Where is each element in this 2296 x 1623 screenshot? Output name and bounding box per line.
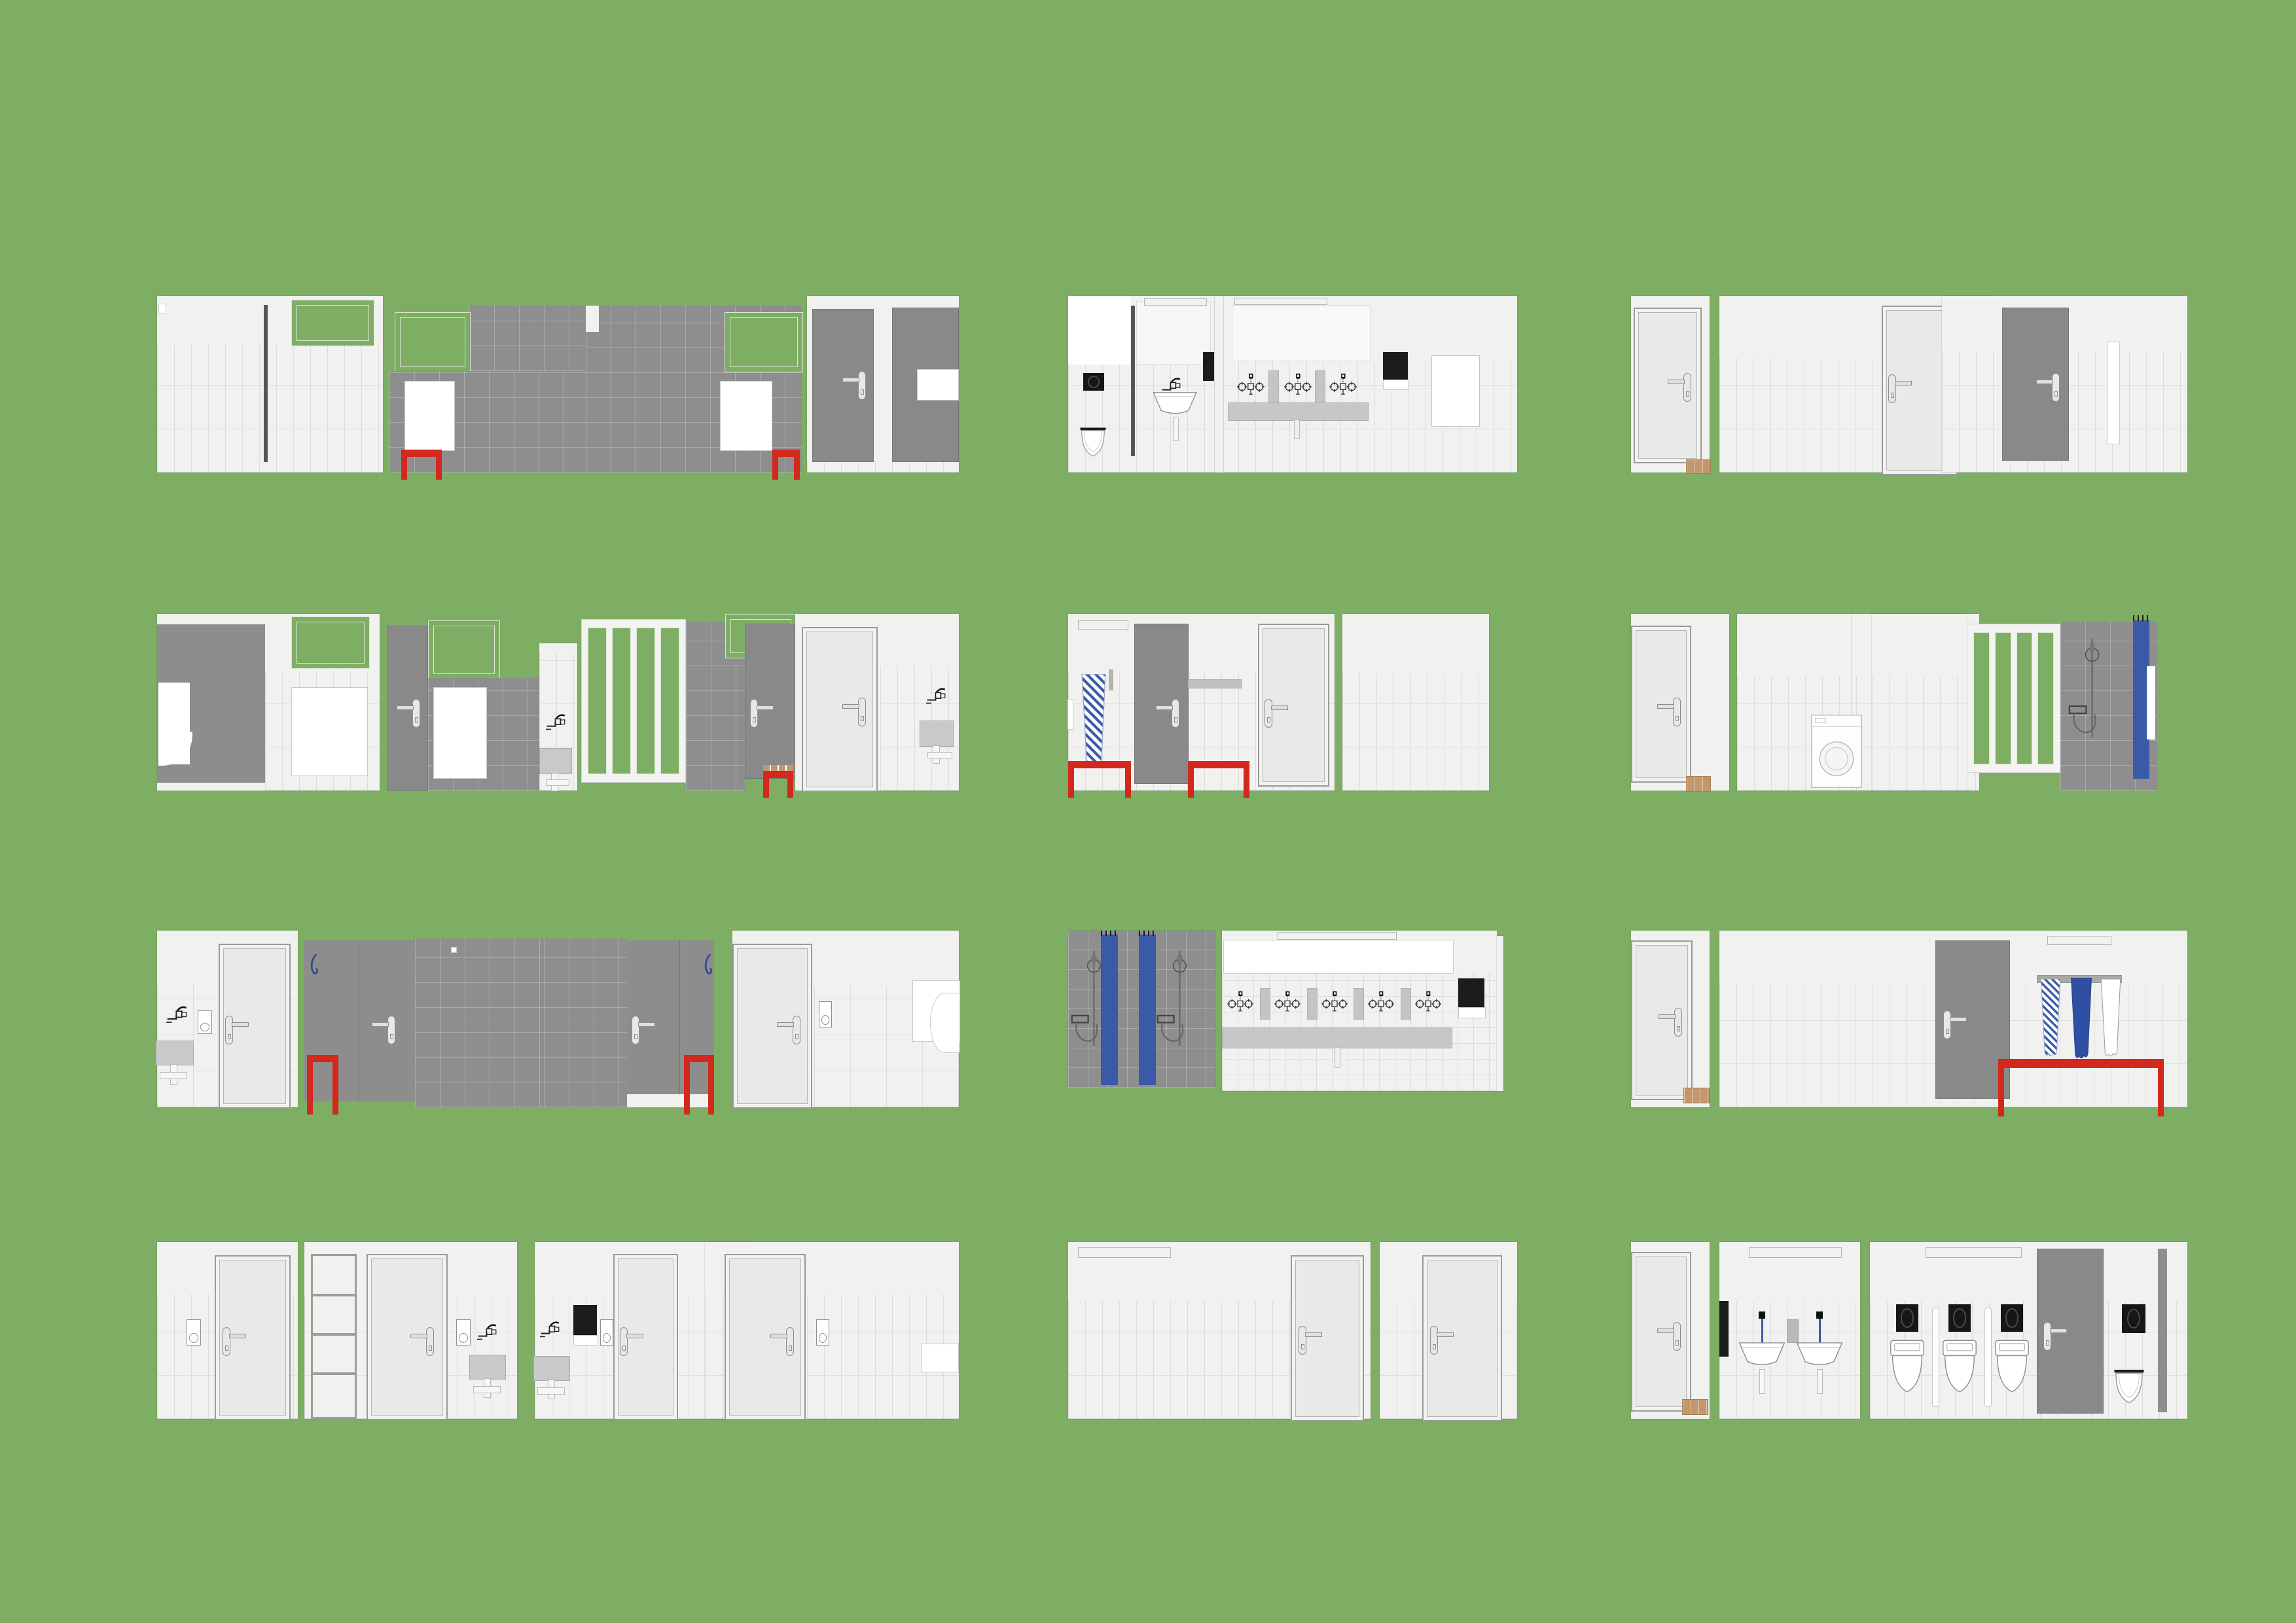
gray-edge-panel — [2158, 1249, 2167, 1412]
tan-skirting — [1686, 459, 1711, 474]
washroom-wall — [1068, 296, 1517, 473]
coat-shelf — [1188, 679, 1242, 688]
rack-door-wall — [304, 1242, 517, 1419]
wall-edge — [1497, 936, 1503, 1091]
faucet-icon — [1415, 991, 1441, 1014]
luminaire — [1234, 298, 1327, 305]
luminaire — [1278, 932, 1397, 940]
door-wall — [1631, 614, 1729, 791]
door-handle — [426, 1327, 434, 1356]
cabinet-shelf — [1383, 380, 1409, 390]
tall-niche — [2107, 342, 2120, 444]
blue-shower-column — [1139, 935, 1156, 1085]
door-niche-wall — [705, 1242, 959, 1419]
mixer-icon — [476, 1322, 499, 1343]
window-opening — [395, 312, 471, 372]
wall-niche — [404, 381, 455, 451]
faucet-icon — [1321, 991, 1348, 1014]
trough-leg — [1335, 1047, 1340, 1068]
wall-niche — [720, 381, 772, 451]
black-cabinet — [1383, 352, 1408, 380]
glass-partition — [581, 619, 686, 783]
mixer-icon — [925, 686, 948, 707]
door-handle — [750, 699, 758, 728]
red-bench — [1188, 761, 1249, 798]
mixer-icon — [539, 1319, 562, 1340]
gray-tiled-wall — [389, 296, 586, 473]
door-wall — [807, 296, 959, 473]
wall-notch — [586, 306, 599, 332]
door-handle — [412, 699, 420, 728]
toilet-icon — [1077, 427, 1109, 458]
urinal-sensor-plate — [1896, 1304, 1918, 1332]
mirror-recess — [1232, 305, 1371, 361]
hook-ticks — [1139, 931, 1156, 936]
wall-niche — [433, 687, 487, 779]
white-door — [1631, 940, 1693, 1100]
glass-pane — [612, 628, 631, 774]
changing-wall — [1068, 614, 1335, 791]
panel-joint — [359, 940, 359, 1101]
door-handle — [620, 1327, 628, 1356]
basin-door-wall — [157, 931, 298, 1107]
tan-seat — [763, 765, 793, 771]
sink-bracket — [160, 1072, 187, 1079]
sink-bracket — [546, 779, 569, 786]
elevation-group-1 — [157, 296, 959, 473]
wash-trough — [1222, 1027, 1452, 1048]
partition-edge — [1131, 306, 1135, 456]
mixer-icon — [545, 712, 568, 733]
gray-sink — [469, 1355, 506, 1380]
blue-towel-icon — [2068, 978, 2094, 1067]
gray-sink — [533, 1356, 570, 1381]
tan-skirting — [1682, 1399, 1708, 1415]
shower-niche — [2147, 666, 2155, 740]
door-handle — [2052, 373, 2060, 402]
black-mirror-panel — [1203, 352, 1214, 381]
window-opening — [291, 616, 370, 669]
red-stool — [307, 1055, 338, 1115]
tile-grid — [1872, 676, 1967, 791]
tile-grid — [1342, 673, 1489, 791]
luminaire — [2047, 936, 2111, 945]
toilet-silhouette — [930, 993, 960, 1053]
door-handle — [858, 371, 866, 400]
gray-tiles — [469, 306, 586, 371]
blue-hook-icon — [703, 954, 713, 977]
glass-pane — [1995, 632, 2011, 764]
door-wall — [1631, 931, 1710, 1107]
sensor-faucet — [1761, 1313, 1763, 1346]
gray-sink — [539, 748, 572, 774]
door-handle — [1673, 698, 1681, 726]
basin-icon — [1738, 1342, 1786, 1369]
white-tiled-part — [1872, 614, 1967, 791]
basin-wall — [539, 643, 577, 791]
door-handle — [223, 1327, 230, 1356]
tan-skirting — [1683, 1088, 1710, 1103]
urinal-icon — [1939, 1339, 1980, 1394]
wall-niche — [291, 687, 368, 776]
sensor-faucet — [1819, 1313, 1821, 1346]
elevation-group-5 — [1068, 614, 1489, 791]
elevation-group-11 — [1068, 1242, 1517, 1419]
panel-joint — [1214, 296, 1224, 473]
luminaire — [1749, 1247, 1842, 1258]
hand-shower-icon — [1157, 946, 1197, 1064]
hand-shower-icon — [1071, 946, 1111, 1064]
trough-leg — [1294, 419, 1300, 439]
hook-ticks — [1101, 931, 1118, 936]
gray-sink — [156, 1041, 194, 1065]
elevation-group-9 — [1631, 931, 2187, 1107]
shelf — [313, 1294, 355, 1296]
urinal-sensor-plate — [2001, 1304, 2023, 1332]
basin-drain — [1173, 418, 1179, 441]
panel-joint — [679, 940, 680, 1094]
panel-niche — [917, 369, 959, 401]
edge-niche — [1067, 699, 1073, 730]
faucet-icon — [1227, 991, 1253, 1014]
white-towel-icon — [2098, 979, 2123, 1064]
shelf-rack — [311, 1254, 357, 1419]
gray-cubicle-wall — [544, 931, 714, 1107]
door-handle — [786, 1327, 794, 1356]
gray-tiles — [415, 938, 559, 1107]
white-door — [367, 1254, 448, 1420]
door-handle — [1265, 699, 1272, 728]
red-bench — [1998, 1059, 2164, 1116]
faucet-icon — [1274, 991, 1300, 1014]
sink-bracket — [473, 1386, 501, 1393]
elevation-group-2 — [1068, 296, 1517, 473]
elevation-group-12 — [1631, 1242, 2187, 1419]
door-handle — [225, 1016, 233, 1044]
door-handle — [1673, 1322, 1681, 1351]
wc-flush-plate — [1083, 373, 1104, 391]
window-opening — [428, 620, 500, 679]
gray-door-wall — [1942, 296, 2187, 473]
privacy-screen — [1984, 1308, 1992, 1407]
card-reader — [816, 1319, 829, 1346]
duct-recess — [1068, 296, 1130, 365]
toilet-icon — [2112, 1365, 2146, 1408]
elevation-group-6 — [1631, 614, 2187, 791]
red-stool — [684, 1055, 714, 1115]
white-tiled-wall — [157, 296, 383, 473]
urinal-icon — [1992, 1339, 2032, 1394]
gray-door — [1134, 624, 1189, 784]
red-bench — [1068, 761, 1131, 798]
blue-hook-icon — [309, 954, 319, 977]
wc-flush-plate — [2122, 1304, 2145, 1333]
divider-board — [1307, 988, 1318, 1020]
divider-board — [1401, 988, 1411, 1020]
shower-wall — [1872, 614, 2157, 791]
towel-wall — [1719, 931, 2187, 1107]
faucet-icon — [1329, 373, 1357, 398]
door-handle — [1888, 374, 1896, 403]
door-handle — [632, 1016, 639, 1044]
red-shower-stool — [772, 450, 800, 480]
door-wall — [1631, 296, 1710, 473]
basin-drain — [1759, 1369, 1765, 1394]
switch — [158, 304, 166, 314]
black-cabinet — [1458, 978, 1484, 1007]
long-tiled-wall — [1068, 1242, 1371, 1419]
luminaire — [1926, 1247, 2022, 1258]
luminaire — [1078, 1247, 1171, 1258]
window-opening — [291, 300, 374, 346]
elevation-group-10 — [157, 1242, 959, 1419]
divider-board — [1315, 370, 1325, 403]
elevation-group-3 — [1631, 296, 2187, 473]
tan-skirting — [1686, 776, 1711, 792]
card-reader — [600, 1319, 613, 1346]
entrance-wall — [157, 1242, 298, 1419]
door-wall — [1631, 1242, 1710, 1419]
hook-rail — [1109, 669, 1113, 690]
upper-panel — [1136, 301, 1211, 365]
white-panel — [1431, 355, 1480, 427]
red-shower-stool — [401, 450, 442, 480]
shower-outlet — [451, 947, 457, 953]
shelf — [313, 1372, 355, 1375]
shower-screen-edge — [264, 305, 268, 462]
shelf — [313, 1333, 355, 1336]
white-door — [1634, 308, 1702, 463]
door-handle — [858, 698, 866, 726]
door-handle — [793, 1016, 800, 1044]
gray-sink — [920, 721, 954, 747]
soap-dispenser — [1787, 1319, 1799, 1343]
gray-shower-wall — [1068, 931, 1215, 1088]
card-reader — [187, 1319, 201, 1346]
door-handle — [1674, 1008, 1682, 1037]
basin-icon — [1152, 391, 1198, 418]
trough-wall — [1222, 931, 1497, 1091]
red-stool — [763, 771, 793, 798]
mirror-band — [1223, 940, 1454, 974]
door-handle — [1683, 373, 1691, 402]
door-basin-wall — [795, 614, 959, 791]
card-reader — [456, 1319, 471, 1346]
black-mirror — [573, 1305, 597, 1335]
urinal-wall — [1870, 1242, 2187, 1419]
gray-cubicle-wall — [304, 931, 520, 1107]
tile-grid — [807, 461, 959, 473]
wall-niche — [921, 1344, 959, 1372]
faucet-icon — [1368, 991, 1394, 1014]
window-opening — [725, 312, 803, 372]
divider-board — [1268, 370, 1279, 403]
glass-pane — [1973, 632, 1990, 764]
wc-door-wall — [732, 931, 959, 1107]
gray-tiled-wall — [586, 296, 802, 473]
cubicle-door-wall — [686, 614, 795, 791]
faucet-icon — [1284, 373, 1312, 398]
washing-machine-icon — [1810, 713, 1863, 789]
glass-pane — [2017, 632, 2033, 764]
door-handle — [1943, 1010, 1951, 1039]
black-side-panel — [1719, 1301, 1729, 1357]
white-door — [802, 627, 878, 792]
mixer-icon — [165, 1004, 190, 1026]
door-wall — [1380, 1242, 1517, 1419]
elevation-sheet: { "sheet": { "title": "bathroom-interior… — [0, 0, 2296, 1623]
sink-bracket — [537, 1387, 565, 1395]
door-handle — [1299, 1326, 1306, 1355]
basin-drain — [1817, 1369, 1823, 1394]
elevation-group-7 — [157, 931, 959, 1107]
hand-shower-icon — [2068, 635, 2110, 756]
wc-flush-buttons — [819, 1001, 832, 1027]
sink-bracket — [927, 752, 952, 758]
luminaire — [1144, 298, 1207, 306]
divider-board — [1354, 988, 1364, 1020]
glass-pane — [588, 628, 607, 774]
mirror-shelf — [573, 1335, 598, 1346]
glass-pane — [636, 628, 655, 774]
basin-icon — [1795, 1342, 1844, 1369]
paper-holder — [198, 1010, 212, 1034]
door-handle — [1430, 1326, 1438, 1355]
door-handle — [2043, 1322, 2051, 1351]
urinal-icon — [1887, 1339, 1928, 1394]
cabinet-shelf — [1458, 1007, 1486, 1018]
gray-tiles — [544, 938, 627, 1107]
tile-grid — [157, 345, 383, 473]
elevation-group-4 — [157, 614, 959, 791]
striped-towel-icon — [2038, 979, 2063, 1064]
plain-tiled-wall — [1342, 614, 1489, 791]
divider-board — [1260, 988, 1270, 1020]
door-handle — [1172, 699, 1179, 728]
luminaire — [1078, 620, 1128, 630]
glass-pane — [2037, 632, 2054, 764]
urinal-sensor-plate — [1948, 1304, 1971, 1332]
wc-wall — [157, 614, 380, 791]
glass-partition — [1967, 624, 2060, 773]
wash-trough — [1228, 402, 1369, 421]
privacy-screen — [1932, 1308, 1939, 1407]
hook-ticks — [2133, 615, 2149, 621]
shower-door-wall — [387, 614, 577, 791]
door-handle — [387, 1016, 395, 1044]
faucet-icon — [1237, 373, 1265, 398]
basin-wall — [1719, 1242, 1860, 1419]
glass-pane — [660, 628, 679, 774]
elevation-group-8 — [1068, 931, 1501, 1091]
